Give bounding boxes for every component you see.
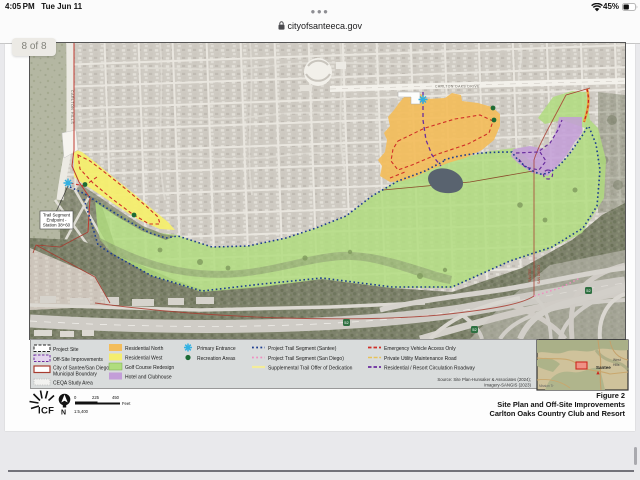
svg-text:SAN DIEGO: SAN DIEGO xyxy=(537,265,541,284)
svg-text:N: N xyxy=(61,410,66,417)
svg-text:450: 450 xyxy=(112,395,120,400)
svg-text:CEQA Study Area: CEQA Study Area xyxy=(53,381,93,387)
svg-text:52: 52 xyxy=(472,327,477,332)
svg-text:Feet: Feet xyxy=(122,401,131,406)
svg-text:Golf Course Redesign: Golf Course Redesign xyxy=(125,365,174,371)
svg-text:ICF: ICF xyxy=(38,406,54,417)
svg-text:Project Site: Project Site xyxy=(53,347,79,353)
svg-text:0: 0 xyxy=(74,395,77,400)
svg-text:Mission Tr: Mission Tr xyxy=(539,384,554,388)
svg-text:Private Utility Maintenance Ro: Private Utility Maintenance Road xyxy=(384,356,457,362)
svg-text:Residential North: Residential North xyxy=(125,346,164,352)
svg-text:Municipal Boundary: Municipal Boundary xyxy=(53,372,97,378)
svg-text:52: 52 xyxy=(344,320,349,325)
svg-text:Off-Site Improvements: Off-Site Improvements xyxy=(53,357,103,363)
svg-text:Station 38+60: Station 38+60 xyxy=(43,222,71,227)
svg-text:225: 225 xyxy=(92,395,100,400)
svg-text:Supplemental Trail Offer of De: Supplemental Trail Offer of Dedication xyxy=(268,366,353,372)
svg-text:Project Trail Segment (San Die: Project Trail Segment (San Diego) xyxy=(268,356,344,362)
svg-text:Emergency Vehicle Access Only: Emergency Vehicle Access Only xyxy=(384,346,456,352)
svg-text:Imagery-SANGIS (2023): Imagery-SANGIS (2023) xyxy=(484,383,531,388)
svg-text:Source: Site Plan-Hunsaker & A: Source: Site Plan-Hunsaker & Associates … xyxy=(437,377,531,382)
svg-text:Primary Entrance: Primary Entrance xyxy=(197,346,236,352)
svg-text:1:5,400: 1:5,400 xyxy=(74,409,89,414)
svg-text:Project Trail Segment (Santee): Project Trail Segment (Santee) xyxy=(268,346,337,352)
svg-text:SANTEE: SANTEE xyxy=(528,268,532,282)
svg-text:Recreation Areas: Recreation Areas xyxy=(197,356,236,362)
svg-text:West: West xyxy=(613,358,621,362)
svg-text:Hills: Hills xyxy=(613,363,620,367)
svg-text:Residential / Resort Circulati: Residential / Resort Circulation Roadway xyxy=(384,366,475,372)
svg-text:CARLTON OAKS DRIVE: CARLTON OAKS DRIVE xyxy=(435,85,480,89)
svg-text:52: 52 xyxy=(586,288,591,293)
svg-text:CARLTON HILLS: CARLTON HILLS xyxy=(70,90,74,124)
svg-text:Santee: Santee xyxy=(596,365,611,370)
svg-text:Residential West: Residential West xyxy=(125,356,163,362)
svg-text:Hotel and Clubhouse: Hotel and Clubhouse xyxy=(125,375,172,381)
